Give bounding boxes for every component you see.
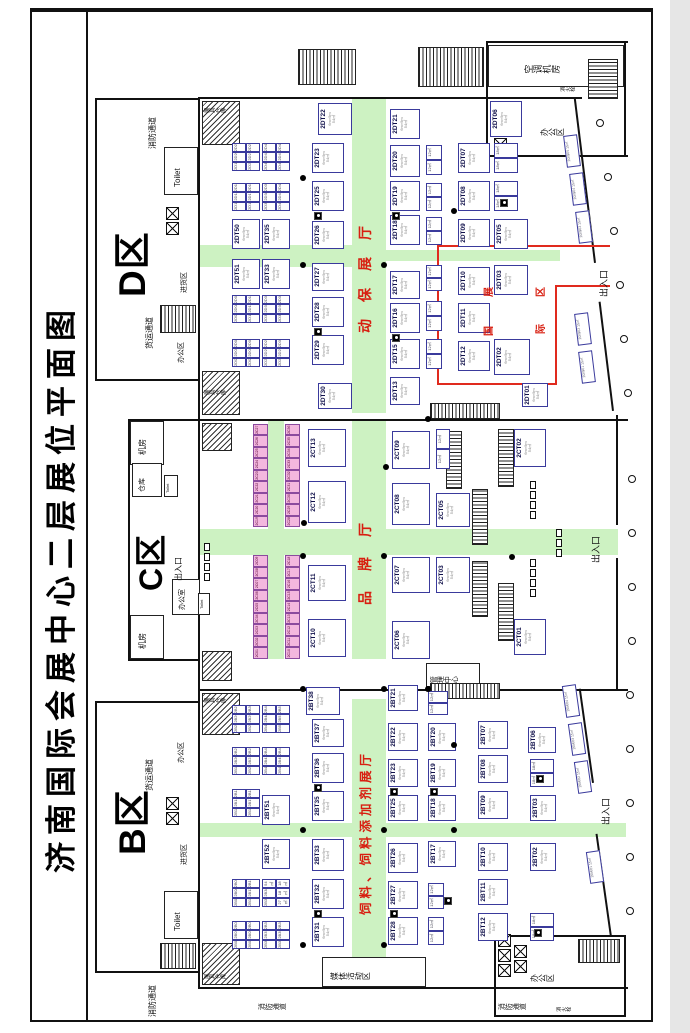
plan-outer-frame [30,10,653,1022]
floorplan-canvas: 济南国际会展中心二层展位平面图 2BT526m×9m54㎡2BT516m×9m5… [0,0,690,1033]
page: { "page": {"title": "济南国际会展中心二层展位平面图"}, … [0,0,690,1033]
page-edge-strip [670,0,690,1033]
rotated-floorplan-wrapper: 济南国际会展中心二层展位平面图 2BT526m×9m54㎡2BT516m×9m5… [0,0,690,1033]
